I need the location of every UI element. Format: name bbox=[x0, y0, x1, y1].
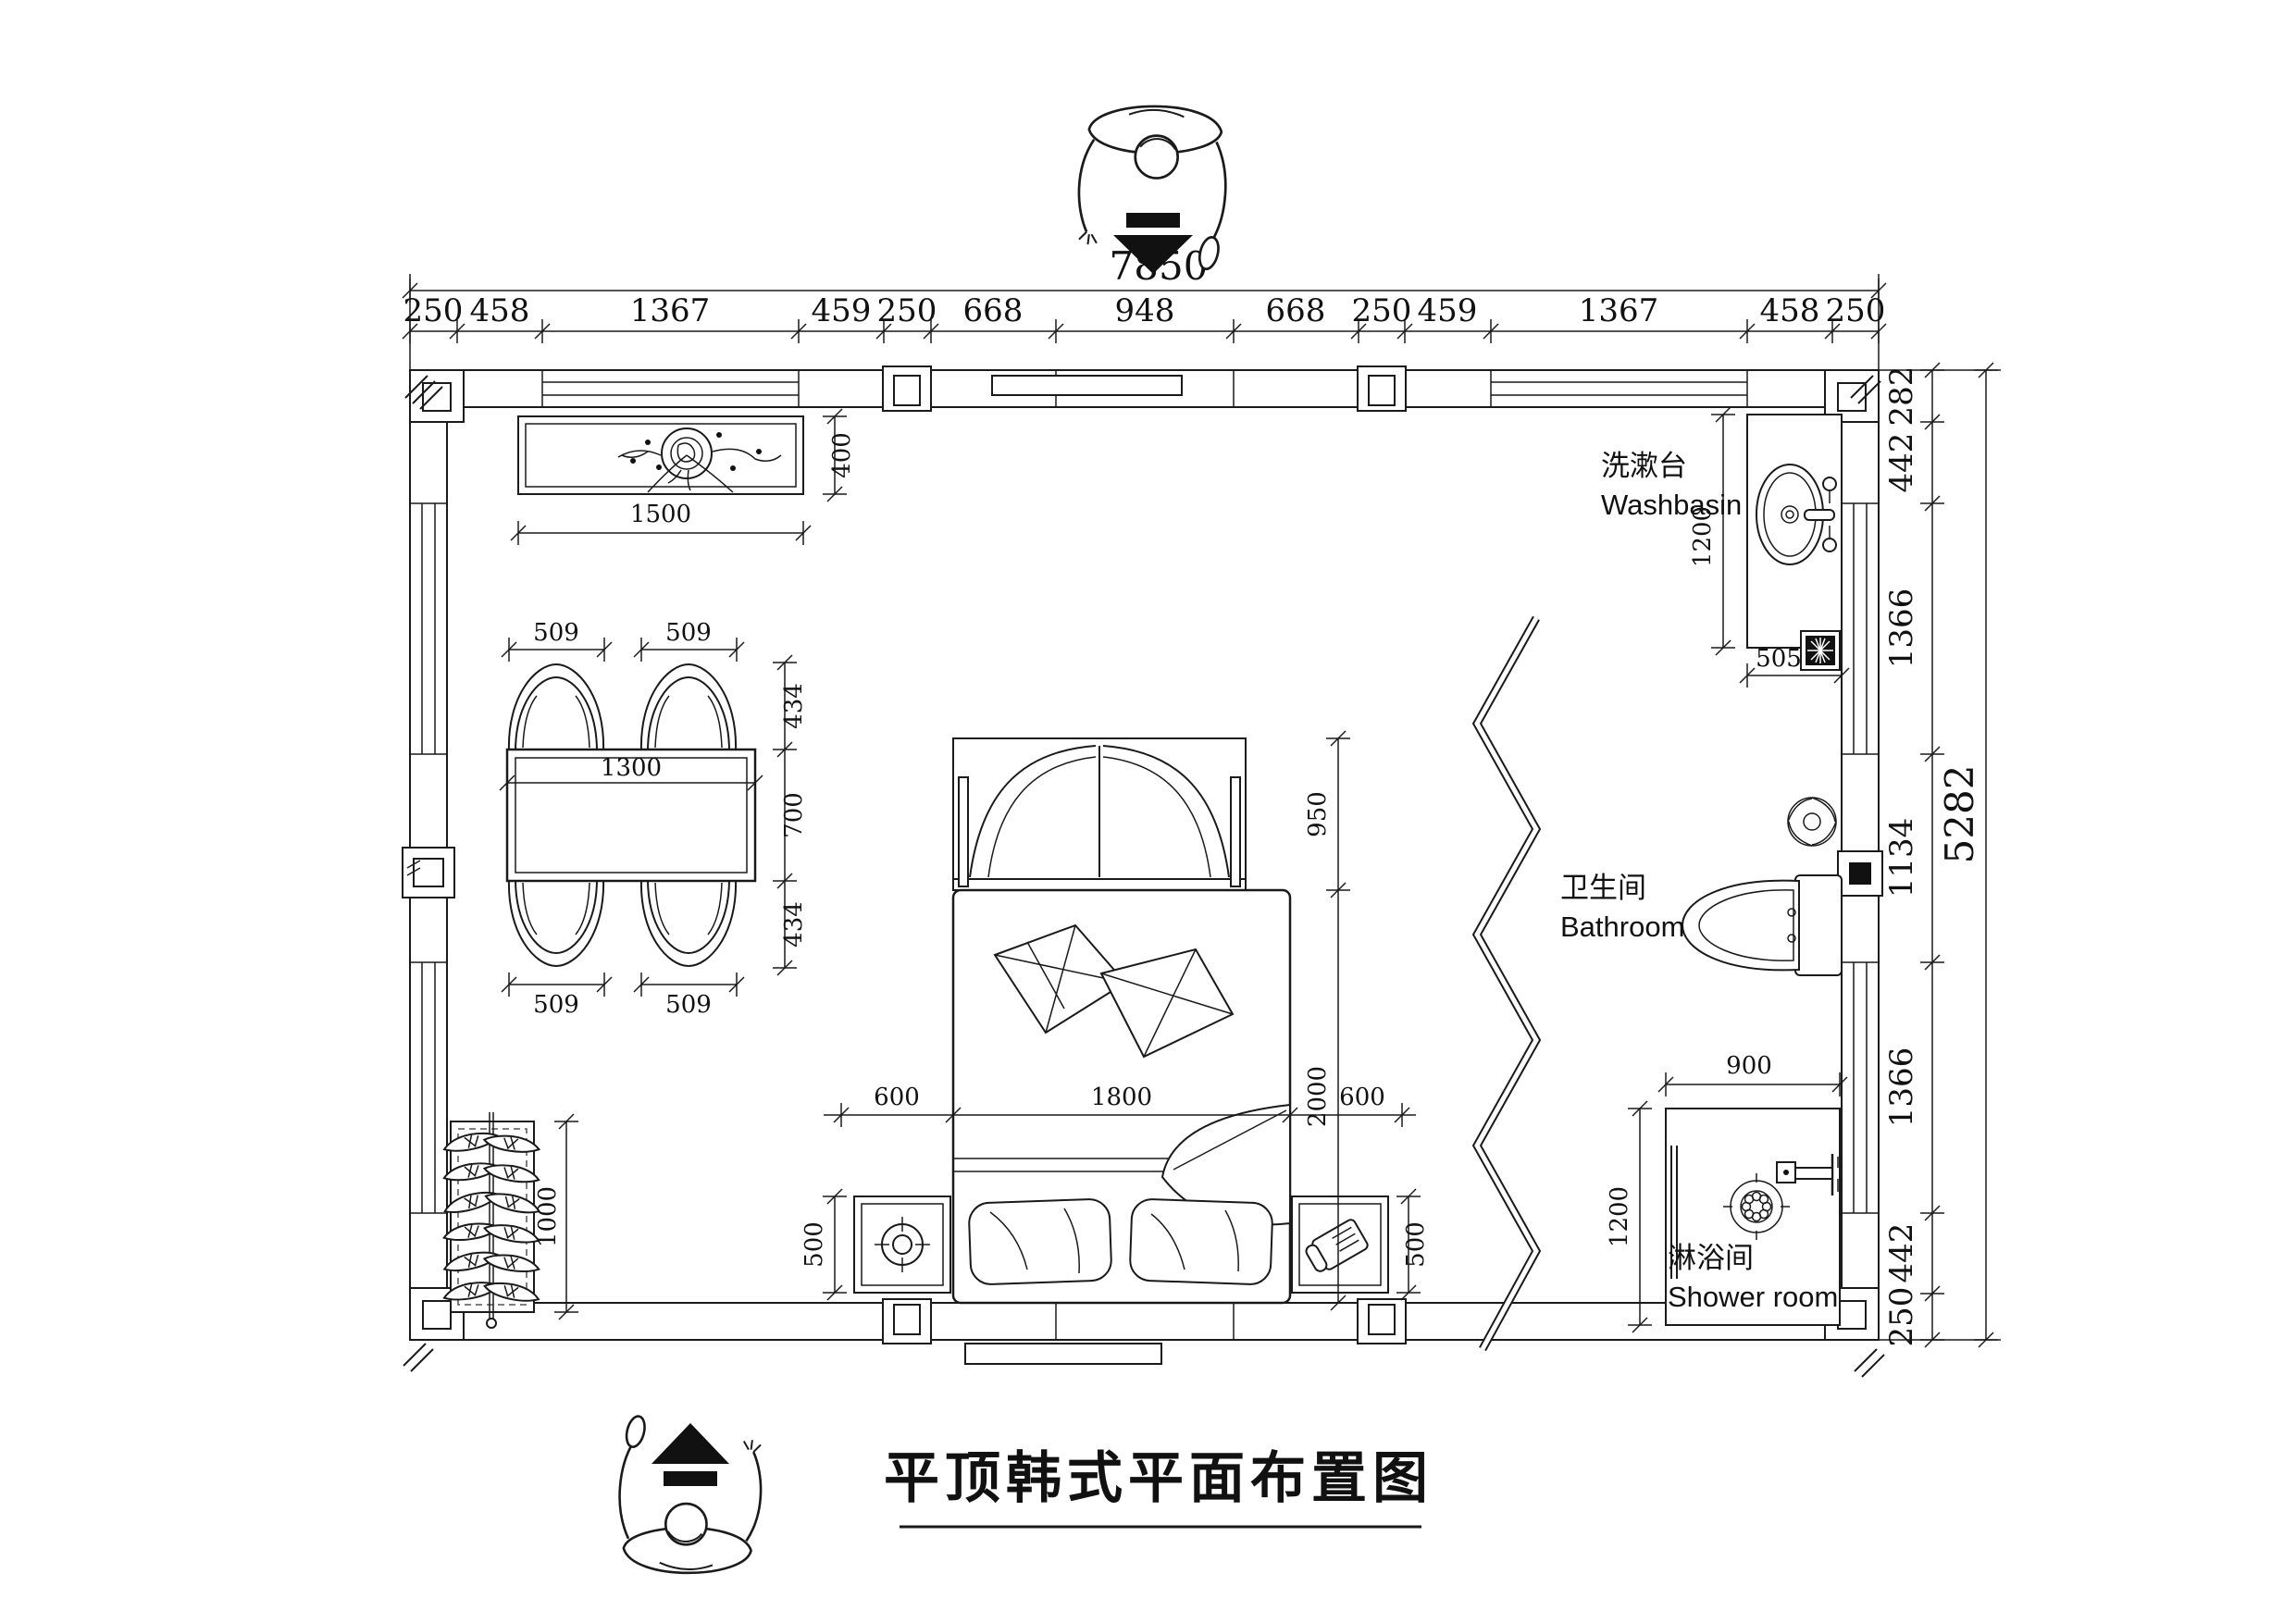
dim-top-7: 668 bbox=[1266, 292, 1326, 329]
dim-bed-right: 600 bbox=[1339, 1084, 1385, 1111]
dim-right-4: 1366 bbox=[1883, 1047, 1920, 1128]
dim-bed-width: 1800 bbox=[1091, 1084, 1152, 1111]
dim-top-6: 948 bbox=[1115, 292, 1175, 329]
dim-bed-left: 600 bbox=[874, 1084, 920, 1111]
dim-right-5: 442 bbox=[1883, 1223, 1920, 1283]
dim-top-8: 250 bbox=[1352, 292, 1412, 329]
dim-right-3: 1134 bbox=[1883, 818, 1920, 898]
entry-top bbox=[1079, 106, 1225, 274]
dim-top-12: 250 bbox=[1826, 292, 1886, 329]
nightstand-right bbox=[1292, 1196, 1388, 1293]
entry-arrow-bottom-icon bbox=[652, 1423, 729, 1464]
dim-top-3: 459 bbox=[812, 292, 872, 329]
dim-right-6: 250 bbox=[1883, 1287, 1920, 1347]
dim-chair-3: 509 bbox=[533, 991, 579, 1019]
dimension-right-overall: 5282 bbox=[1937, 363, 1998, 1347]
dim-chair-1: 509 bbox=[533, 619, 579, 647]
drawing-title-block: 平顶韩式平面布置图 bbox=[884, 1447, 1433, 1527]
dim-washbasin-width: 505 bbox=[1756, 645, 1802, 673]
toilet-icon bbox=[1682, 875, 1842, 975]
entry-bottom bbox=[620, 1415, 762, 1573]
dim-dining-side-2: 434 bbox=[780, 901, 808, 948]
dim-shower-width: 900 bbox=[1726, 1052, 1772, 1080]
floor-plan-drawing: 7850 250 458 1367 459 250 668 948 668 25… bbox=[0, 0, 2296, 1623]
dining-set: 1300 509 509 509 509 434 700 434 bbox=[500, 619, 808, 1019]
dim-dining-side-1: 700 bbox=[780, 792, 808, 838]
dimension-top-chain: 250 458 1367 459 250 668 948 668 250 459… bbox=[403, 292, 1886, 343]
dim-top-1: 458 bbox=[470, 292, 530, 329]
shoe-cabinet: 1000 bbox=[442, 1112, 578, 1328]
label-shower-en: Shower room bbox=[1668, 1281, 1838, 1313]
dim-shoe-cabinet: 1000 bbox=[534, 1186, 562, 1247]
folding-partition bbox=[1477, 618, 1536, 1349]
label-bathroom-en: Bathroom bbox=[1560, 911, 1684, 943]
dim-shower-length: 1200 bbox=[1606, 1186, 1633, 1247]
floor-plan-page: 7850 250 458 1367 459 250 668 948 668 25… bbox=[0, 0, 2296, 1623]
dim-top-4: 250 bbox=[877, 292, 937, 329]
page-title: 平顶韩式平面布置图 bbox=[884, 1447, 1433, 1509]
bathroom-area: 卫生间 Bathroom bbox=[1560, 798, 1842, 975]
dim-chair-2: 509 bbox=[665, 619, 712, 647]
dim-total-height: 5282 bbox=[1937, 765, 1982, 864]
dim-nightstand-right: 500 bbox=[1402, 1221, 1430, 1268]
dim-bed-length: 2000 bbox=[1304, 1066, 1332, 1127]
floor-drain-icon bbox=[1801, 631, 1840, 670]
dim-top-10: 1367 bbox=[1579, 292, 1659, 329]
dim-top-11: 458 bbox=[1760, 292, 1820, 329]
dim-bay-depth: 950 bbox=[1304, 791, 1332, 837]
label-washbasin-en: Washbasin bbox=[1601, 489, 1742, 521]
washbasin-area: 1200 505 洗漱台 Washbasin bbox=[1601, 407, 1849, 688]
dim-top-5: 668 bbox=[963, 292, 1024, 329]
dim-console-depth: 400 bbox=[828, 432, 856, 478]
dim-table-length: 1300 bbox=[601, 754, 662, 782]
dim-chair-4: 509 bbox=[665, 991, 712, 1019]
dim-right-1: 442 bbox=[1883, 433, 1920, 493]
console-cabinet: 1500 400 bbox=[511, 409, 856, 545]
dim-dining-side-0: 434 bbox=[780, 683, 808, 729]
dim-top-9: 459 bbox=[1418, 292, 1478, 329]
dim-console-width: 1500 bbox=[630, 501, 691, 528]
bay-window-curtains bbox=[953, 738, 1246, 890]
dim-right-2: 1366 bbox=[1883, 588, 1920, 669]
dim-right-0: 282 bbox=[1883, 366, 1920, 427]
exhaust-fan-icon bbox=[1788, 798, 1836, 846]
label-bathroom-zh: 卫生间 bbox=[1560, 872, 1646, 904]
dim-top-0: 250 bbox=[403, 292, 464, 329]
nightstand-left bbox=[854, 1196, 950, 1293]
dim-top-2: 1367 bbox=[630, 292, 711, 329]
entry-arrow-bottom-bar bbox=[664, 1471, 717, 1486]
entry-arrow-top-bar bbox=[1126, 213, 1180, 228]
dim-nightstand-left: 500 bbox=[800, 1221, 828, 1268]
label-shower-zh: 淋浴间 bbox=[1668, 1242, 1754, 1274]
label-washbasin-zh: 洗漱台 bbox=[1601, 450, 1687, 482]
shower-area: 900 1200 淋浴间 Shower room bbox=[1606, 1052, 1847, 1332]
